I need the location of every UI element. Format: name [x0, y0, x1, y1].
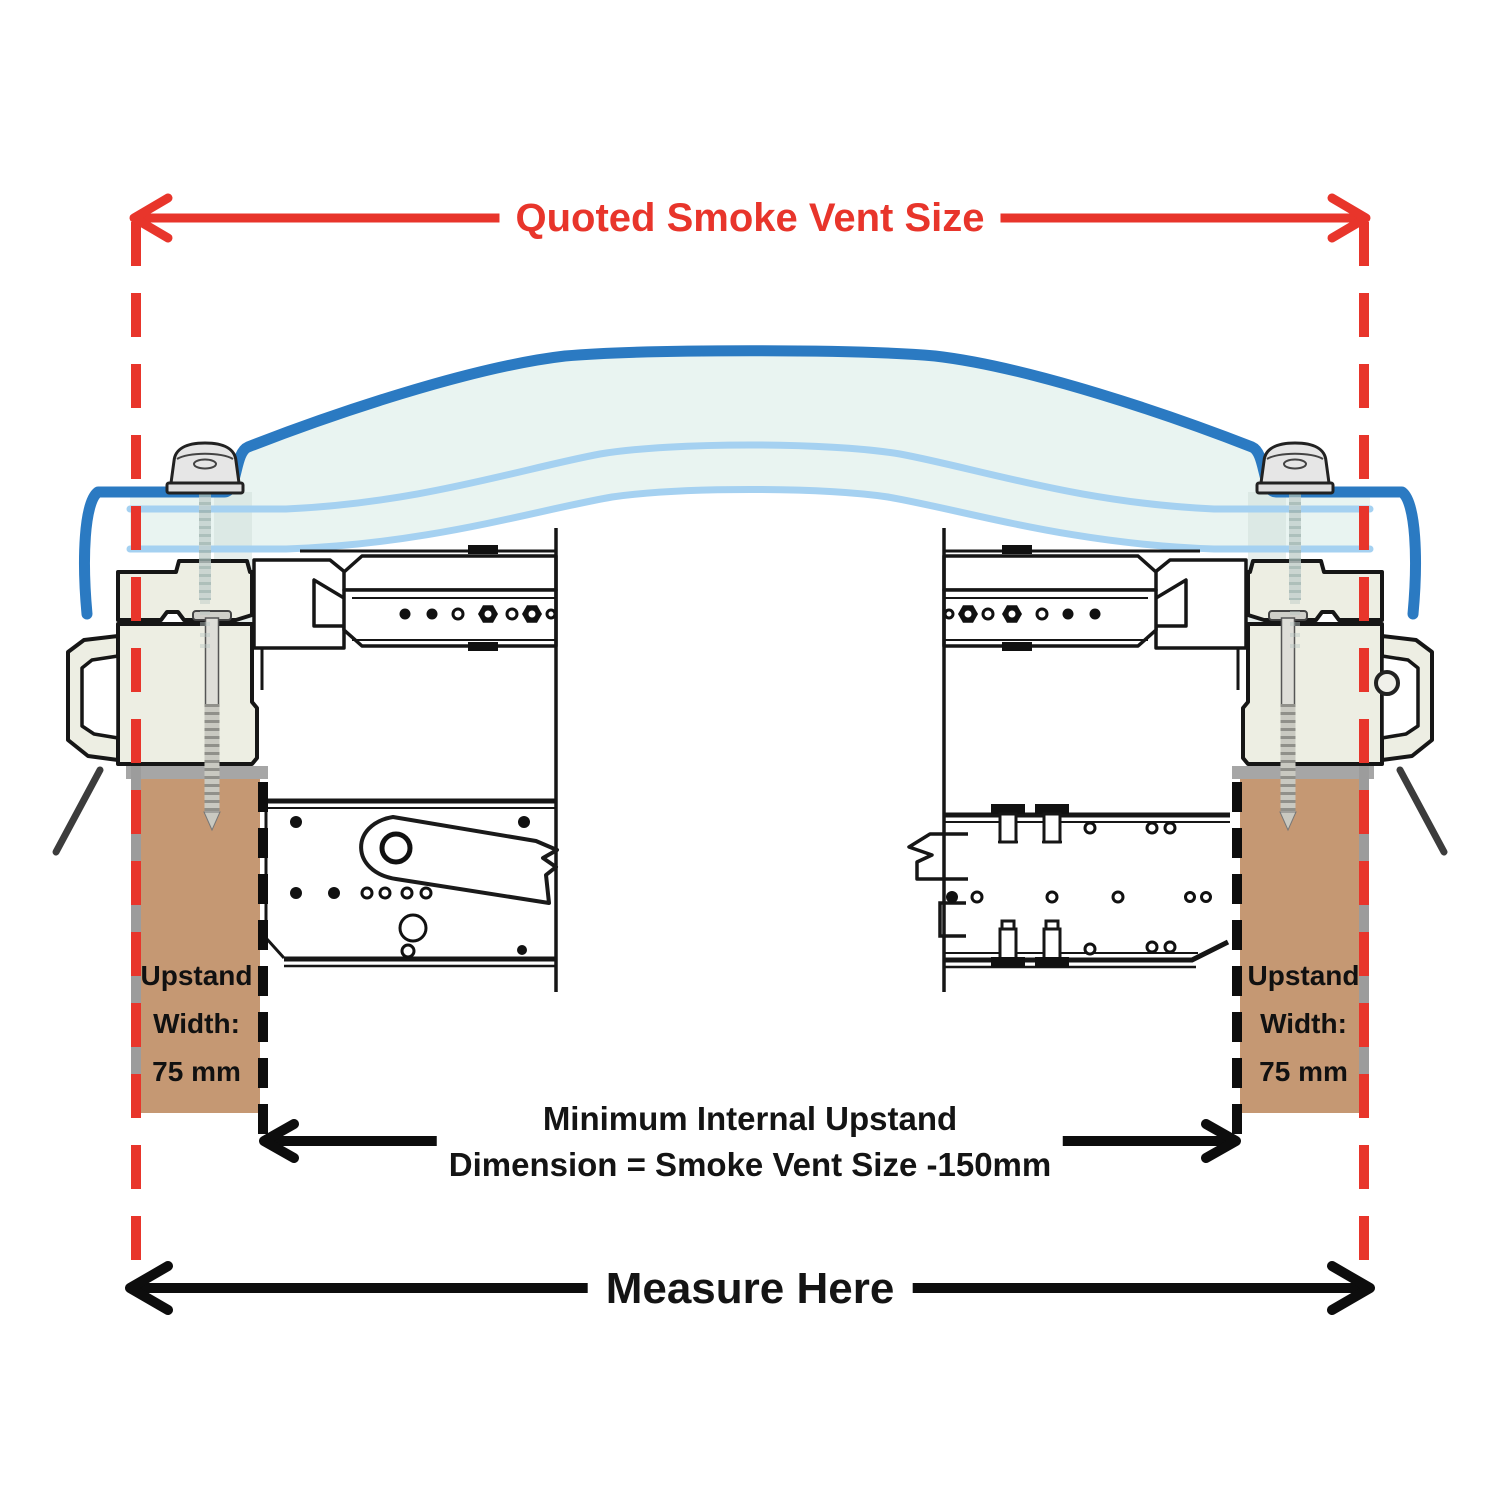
break-bracket — [909, 834, 968, 879]
bolt — [1035, 921, 1069, 967]
latch-ring — [1376, 672, 1398, 694]
gasket-strip — [126, 766, 268, 779]
internal-dimension-line2: Dimension = Smoke Vent Size -150mm — [449, 1142, 1051, 1188]
upstand-left-line1: Upstand — [133, 952, 260, 1000]
actuator-mechanism-left — [266, 801, 557, 966]
quoted-smoke-vent-size-label: Quoted Smoke Vent Size — [499, 192, 1000, 244]
quoted-smoke-vent-size-text: Quoted Smoke Vent Size — [515, 196, 984, 240]
upstand-right-line1: Upstand — [1240, 952, 1367, 1000]
upstand-left-line2: Width: — [133, 1000, 260, 1048]
roof-flashing-line — [56, 770, 100, 852]
bolt — [991, 921, 1025, 967]
bracket-mechanism-right — [909, 804, 1230, 967]
fixing-cap — [167, 443, 243, 493]
kerb-flap-notch — [82, 656, 118, 738]
upstand-right-line2: Width: — [1240, 1000, 1367, 1048]
smoke-vent-section-diagram: Quoted Smoke Vent Size Minimum Internal … — [0, 0, 1500, 1500]
upstand-right-line3: 75 mm — [1240, 1048, 1367, 1096]
upstand-left-line3: 75 mm — [133, 1048, 260, 1096]
pivot-ring — [382, 834, 410, 862]
measure-here-label: Measure Here — [588, 1262, 913, 1316]
internal-dimension-line1: Minimum Internal Upstand — [449, 1096, 1051, 1142]
upstand-width-label-right: Upstand Width: 75 mm — [1240, 952, 1367, 1096]
internal-upstand-dimension-label: Minimum Internal Upstand Dimension = Smo… — [437, 1096, 1063, 1188]
dome-glass-fill — [130, 351, 1370, 549]
upstand-width-label-left: Upstand Width: 75 mm — [133, 952, 260, 1096]
measure-here-text: Measure Here — [606, 1264, 895, 1313]
